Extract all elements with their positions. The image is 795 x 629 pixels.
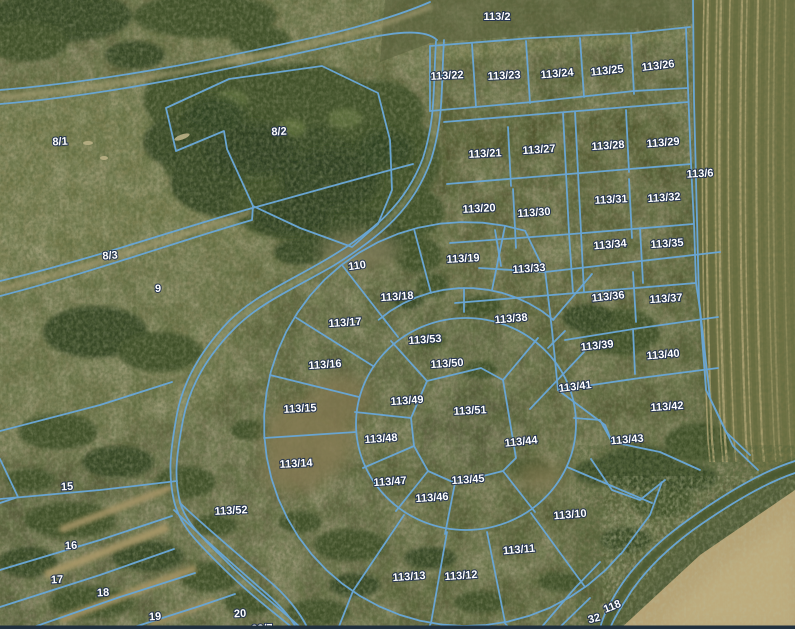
svg-text:113/15: 113/15 bbox=[283, 402, 317, 416]
svg-text:113/23: 113/23 bbox=[487, 69, 521, 83]
svg-text:113/19: 113/19 bbox=[446, 252, 480, 266]
svg-text:113/33: 113/33 bbox=[512, 262, 546, 276]
svg-text:113/49: 113/49 bbox=[390, 394, 424, 408]
svg-text:113/18: 113/18 bbox=[380, 290, 414, 304]
svg-text:113/46: 113/46 bbox=[415, 491, 449, 505]
svg-text:113/12: 113/12 bbox=[444, 569, 478, 583]
svg-text:113/47: 113/47 bbox=[373, 475, 407, 489]
svg-text:16: 16 bbox=[65, 540, 78, 553]
svg-text:113/42: 113/42 bbox=[650, 400, 684, 414]
svg-text:113/22: 113/22 bbox=[430, 69, 464, 83]
svg-text:20: 20 bbox=[234, 608, 247, 621]
svg-text:113/32: 113/32 bbox=[647, 191, 681, 205]
svg-text:110: 110 bbox=[348, 259, 367, 273]
svg-text:113/6: 113/6 bbox=[686, 167, 714, 180]
svg-text:8/3: 8/3 bbox=[102, 249, 118, 262]
svg-text:113/27: 113/27 bbox=[522, 143, 556, 157]
svg-text:113/35: 113/35 bbox=[650, 237, 684, 251]
svg-text:113/20: 113/20 bbox=[462, 202, 496, 216]
svg-text:113/45: 113/45 bbox=[451, 473, 485, 487]
svg-text:15: 15 bbox=[61, 481, 74, 494]
svg-text:113/16: 113/16 bbox=[308, 358, 342, 372]
svg-text:113/17: 113/17 bbox=[328, 316, 362, 330]
svg-text:9: 9 bbox=[155, 283, 161, 295]
svg-text:113/48: 113/48 bbox=[364, 432, 398, 446]
svg-text:113/50: 113/50 bbox=[430, 357, 464, 371]
svg-text:18: 18 bbox=[97, 587, 110, 600]
svg-text:19: 19 bbox=[149, 611, 162, 624]
svg-text:113/30: 113/30 bbox=[517, 206, 551, 220]
svg-text:113/31: 113/31 bbox=[594, 193, 628, 207]
svg-text:113/14: 113/14 bbox=[279, 457, 314, 471]
svg-text:113/53: 113/53 bbox=[408, 333, 442, 347]
svg-text:113/21: 113/21 bbox=[468, 147, 502, 161]
svg-text:113/37: 113/37 bbox=[649, 292, 683, 306]
svg-text:113/51: 113/51 bbox=[453, 404, 487, 418]
svg-text:17: 17 bbox=[51, 574, 64, 587]
svg-text:113/2: 113/2 bbox=[484, 11, 511, 23]
svg-text:113/52: 113/52 bbox=[214, 504, 248, 518]
svg-text:113/13: 113/13 bbox=[392, 570, 426, 584]
svg-text:113/28: 113/28 bbox=[591, 139, 625, 153]
svg-text:8/2: 8/2 bbox=[271, 126, 287, 139]
svg-text:8/1: 8/1 bbox=[52, 136, 68, 149]
